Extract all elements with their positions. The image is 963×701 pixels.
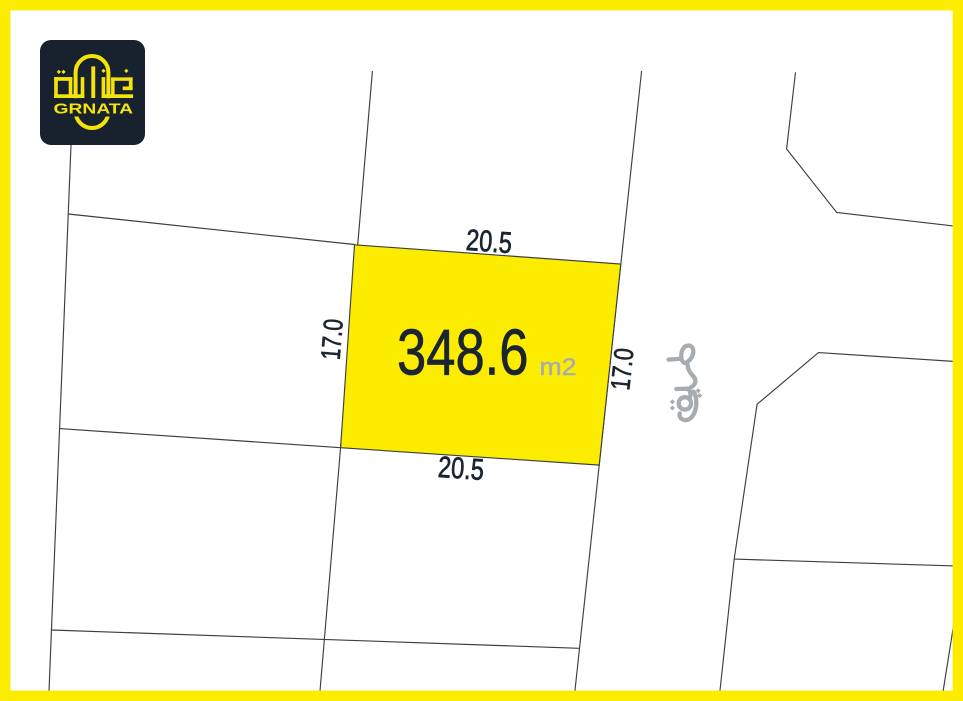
svg-text:20.5: 20.5 (437, 451, 485, 487)
svg-text:17.0: 17.0 (316, 318, 349, 361)
svg-text:17.0: 17.0 (605, 347, 639, 392)
svg-text:20.5: 20.5 (465, 224, 513, 260)
svg-text:348.6: 348.6 (397, 316, 529, 389)
svg-text:m2: m2 (540, 354, 577, 381)
svg-text:GRNATA: GRNATA (54, 100, 134, 117)
